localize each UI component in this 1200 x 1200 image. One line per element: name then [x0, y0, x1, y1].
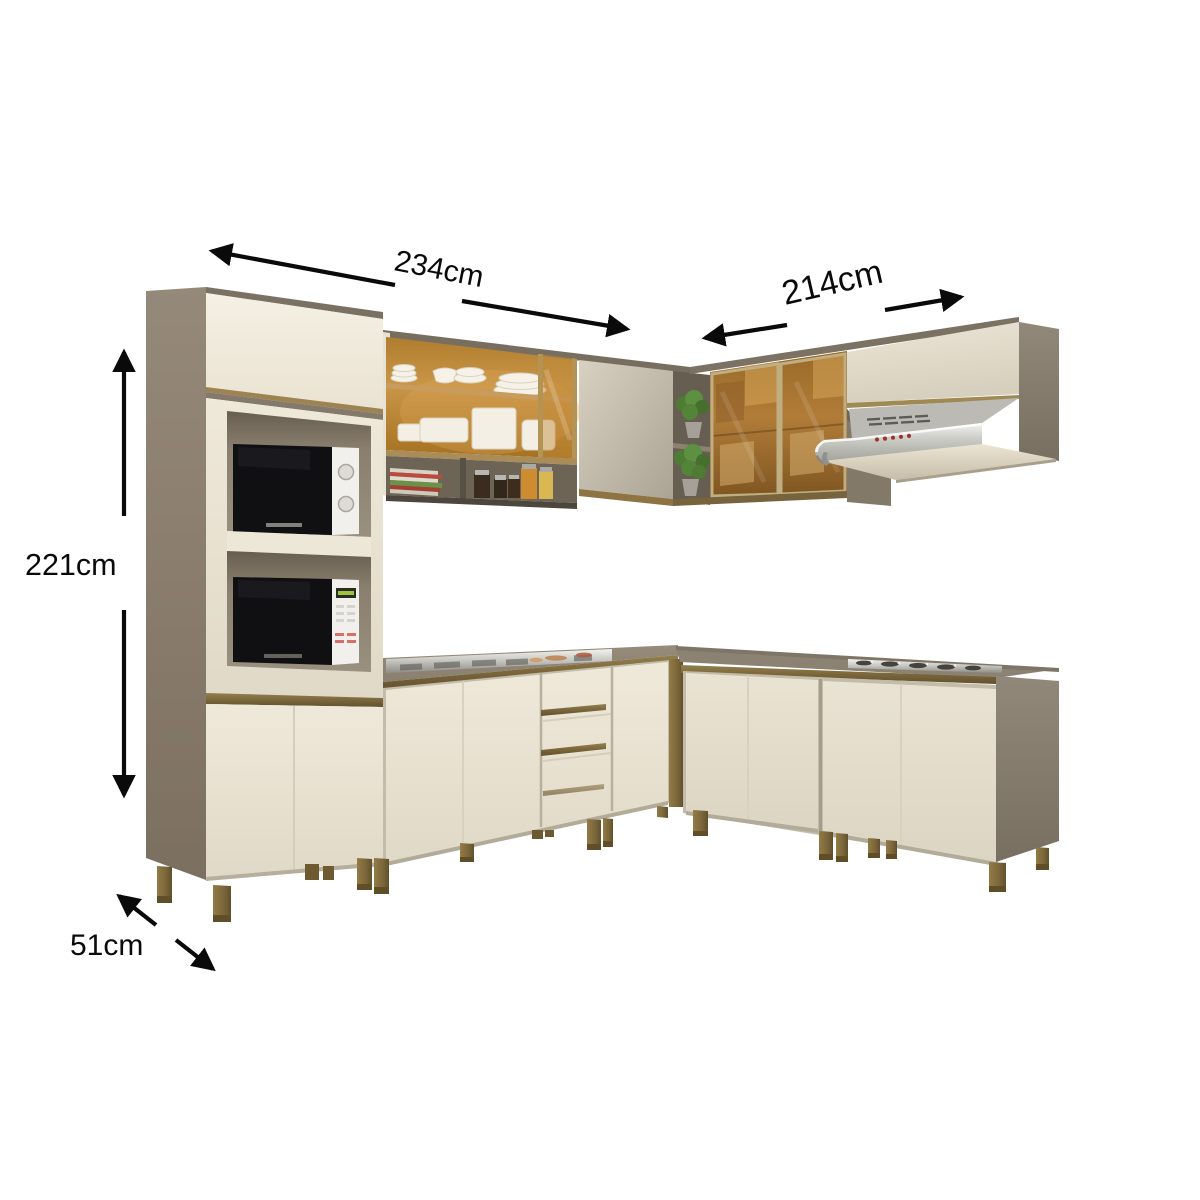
svg-text:221cm: 221cm — [25, 548, 117, 582]
svg-text:51cm: 51cm — [70, 929, 143, 962]
